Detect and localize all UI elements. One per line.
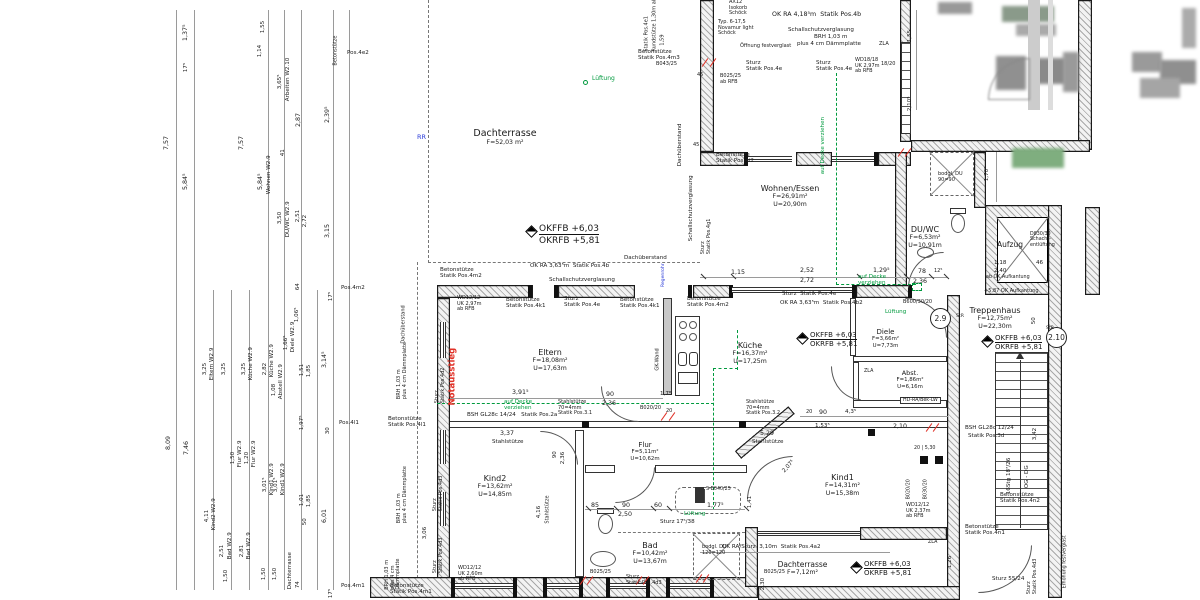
annotation-label: Pos.4m2 [341, 285, 365, 291]
annotation-label: 1,08 [271, 384, 277, 396]
annotation-label: Pos.4l1 [339, 420, 359, 426]
annotation-label: 2,82 [262, 363, 268, 375]
annotation-label: Betonstütze Statik Pos.4m2 [440, 267, 482, 280]
room-label: Kind1 F=14,31m² U=15,38m [805, 473, 880, 498]
blur-block [1132, 52, 1162, 72]
annotation-label: Sturz Statik Pos.4d2 [435, 368, 446, 404]
annotation-label: 3,01⁵ [273, 478, 279, 493]
steel-column [739, 421, 746, 428]
annotation-label: BSH GL28c 12/24 [965, 425, 1014, 431]
interior-wall [575, 430, 584, 577]
annotation-label: 1,01 [299, 494, 305, 506]
annotation-label: Betonstütze Statik Pos.4m2 [687, 296, 729, 309]
annotation-label: 1,29⁵ [873, 267, 890, 274]
wall [758, 586, 960, 600]
annotation-label: Sturz Statik Pos.4d3 [626, 575, 662, 586]
annotation-label: 41 [280, 149, 286, 156]
dimension-chain-line [213, 290, 214, 590]
level-marker: OKFFB +6,03OKRFB +5,81 [852, 560, 911, 578]
wall [860, 527, 947, 540]
annotation-label: 2,51 [219, 545, 225, 557]
annotation-label: 1,50 [223, 570, 229, 582]
level-marker-icon [981, 335, 994, 348]
annotation-label: Dachterrasse [287, 552, 293, 589]
dimension-chain-line [268, 10, 269, 590]
interior-wall [853, 356, 947, 362]
annotation-label: 17⁵ [328, 589, 334, 598]
annotation-label: 1,59 [660, 34, 666, 45]
dimension-chain-line [194, 10, 195, 590]
annotation-label: 64 [295, 283, 301, 290]
annotation-label: 1,85 [306, 365, 312, 377]
annotation-label: Sturz Statik Pos.4e [564, 296, 600, 309]
annotation-label: 2,39⁵ [324, 107, 331, 124]
blur-block [1063, 52, 1079, 92]
level-marker: OKFFB +6,03OKRFB +5,81 [527, 224, 600, 247]
annotation-label: 50 [302, 518, 308, 525]
annotation-label: 3,42 [1032, 428, 1038, 440]
annotation-label: 12⁵ [934, 269, 942, 275]
annotation-label: B600/30/20 [903, 300, 932, 306]
dimension-line [700, 552, 890, 553]
annotation-label: 1,37⁵ [182, 25, 189, 42]
room-label: Bad F=10,42m² U=13,67m [615, 541, 685, 566]
annotation-label: 2,52 [800, 267, 814, 274]
annotation-label: 3,25 [241, 363, 247, 375]
annotation-label: auf Decke verziehen [858, 274, 886, 287]
annotation-label: 46 [1036, 260, 1043, 266]
annotation-label: 2,10 [893, 423, 907, 430]
level-marker-icon [850, 561, 863, 574]
door-arc [831, 366, 861, 400]
annotation-label: 2,10⁵ [907, 97, 913, 112]
annotation-label: WD12/12 UK 2,37m ab RFB [906, 503, 931, 520]
blur-block [938, 2, 972, 14]
annotation-label: 1,77⁵ [707, 502, 724, 509]
annotation-label: 1,18 [994, 260, 1006, 266]
stair-direction-arrow [1016, 352, 1024, 359]
annotation-label: 5,84⁵ [182, 174, 189, 191]
annotation-label: Schallschutzverglasung [788, 27, 854, 33]
annotation-label: 3,25 [221, 363, 227, 375]
annotation-label: Sturz Statik Pos.4e [782, 291, 836, 297]
annotation-label: 20 [666, 409, 672, 415]
wall [745, 527, 758, 587]
annotation-label: S-B040/25 [706, 487, 731, 492]
annotation-label: Abstell W2.9 [278, 364, 284, 399]
annotation-label: 60 [654, 502, 662, 509]
room-label: Aufzug [985, 240, 1035, 249]
annotation-label: Betonstütze Statik Pos.4k1 [620, 297, 660, 310]
room-label: Dachterrasse F=52,03 m² [440, 128, 570, 147]
annotation-label: 1,70⁵ [984, 167, 990, 182]
steel-beam-line [450, 427, 947, 428]
floor-plan-canvas: Dachterrasse F=52,03 m² Wohnen/Essen F=2… [0, 0, 1200, 600]
annotation-label: WD18/18 UK 2,97m ab RFB [855, 58, 880, 75]
room-label: Eltern F=18,08m² U=17,63m [505, 348, 595, 373]
window [440, 430, 446, 464]
annotation-label: AX12 Isokorb Schöck [729, 0, 747, 17]
annotation-label: Bad W2.9 [227, 532, 233, 559]
annotation-label: Sturz Statik Pos.4d3 [1027, 559, 1038, 595]
annotation-label: 1,66⁵ [283, 336, 289, 351]
annotation-label: B025/25 [764, 570, 785, 576]
annotation-label: Schallschutzverglasung [549, 277, 615, 283]
annotation-label: 1,20 [244, 452, 250, 464]
annotation-label: 1,55 [907, 30, 913, 42]
annotation-label: Betonstütze [333, 36, 339, 66]
annotation-label: +5,87 OK Aufkantung [984, 289, 1039, 295]
annotation-label: BRH 1,03 m plus 4 cm Dämmplatte [397, 342, 408, 399]
annotation-label: Lüftung [885, 309, 906, 315]
annotation-label: Lüftung [684, 511, 705, 517]
annotation-label: 4,11 [204, 510, 210, 522]
dimension-chain-line [349, 10, 350, 590]
annotation-label: OK RA 3,63⁵m Statik Pos.4b [530, 263, 609, 269]
annotation-label: 4,16 [536, 506, 542, 518]
door-arc [988, 58, 1030, 100]
wall [1078, 0, 1092, 150]
annotation-label: ab OK Aufkantung [986, 275, 1030, 280]
annotation-label: 4,3⁵ [845, 409, 856, 415]
annotation-label: BRH 1,03 m plus 4 cm Dämmplatte [397, 466, 408, 523]
annotation-label: 1,26 [947, 556, 953, 568]
annotation-label: OG - DG [1024, 465, 1030, 488]
annotation-label: 2,40 [994, 268, 1006, 274]
annotation-label: 45 [697, 73, 703, 79]
wall [947, 295, 960, 598]
window [832, 156, 874, 162]
dimension-line [996, 152, 997, 202]
annotation-label: StR [956, 314, 964, 319]
annotation-label: 7,46 [183, 441, 190, 455]
annotation-label: 5,29 [760, 430, 774, 437]
annotation-label: Küche W2.9 [248, 347, 254, 380]
annotation-label: Wohnen W2.9 [266, 155, 272, 194]
steel-beam-line [450, 421, 947, 422]
annotation-label: Diele W2.9 [290, 322, 296, 353]
annotation-label: OK RA 3,63⁵m Statik Pos.4b2 [780, 300, 863, 306]
window [748, 156, 792, 162]
annotation-label: 30 [325, 427, 331, 434]
dimension-line [585, 509, 745, 510]
annotation-label: 3,15 [324, 224, 331, 238]
wall-cap [710, 577, 714, 598]
annotation-label: Schallschutzverglasung [688, 175, 694, 241]
annotation-label: RR [417, 134, 426, 141]
annotation-label: Stahlstütze 70=4mm Statik Pos.3.2 [746, 400, 780, 417]
annotation-label: Notausstieg [448, 348, 458, 406]
annotation-label: 2,50 [618, 511, 632, 518]
level-marker-icon [525, 225, 538, 238]
hob-ring [679, 333, 687, 341]
annotation-label: 3,65⁵ [277, 75, 283, 90]
annotation-label: 1,41 [747, 496, 753, 508]
annotation-label: 7,57 [238, 136, 245, 150]
annotation-label: 1,55 [260, 21, 266, 33]
annotation-label: ZLA [879, 42, 889, 48]
annotation-label: 3,25 [202, 363, 208, 375]
detail-badge: 2.9 [930, 308, 951, 329]
annotation-label: 5,84⁵ [257, 174, 264, 191]
annotation-label: 1,50 [261, 568, 267, 580]
annotation-label: 90 [622, 502, 630, 509]
annotation-label: 2,36 [602, 400, 616, 407]
window [670, 583, 710, 589]
annotation-label: 20 [806, 410, 812, 416]
annotation-label: B025/25 [590, 570, 611, 576]
annotation-label: Sturz Statik Pos.4d3 [433, 476, 444, 512]
annotation-label: 2,36 [560, 452, 566, 464]
vent-device [695, 487, 704, 503]
wall-cap [874, 152, 878, 166]
annotation-label: 2,87 [295, 113, 302, 127]
annotation-label: WD12/12 UK 2,97m ab RFB [457, 296, 482, 313]
annotation-label: 3,14⁵ [321, 352, 328, 369]
annotation-label: Arbeiten W2.10 [285, 58, 291, 102]
blur-block [1182, 8, 1196, 48]
annotation-label: Statik Pos.3d [968, 433, 1004, 439]
annotation-label: 90 [552, 451, 558, 458]
annotation-label: plus 4 cm Dämmplatte [797, 41, 861, 47]
outlet-box [920, 456, 928, 464]
annotation-label: 7,57 [163, 136, 170, 150]
annotation-label: Flur W2.9 [237, 440, 243, 467]
annotation-label: 2,72 [800, 277, 814, 284]
room-label: Wohnen/Essen F=26,91m² U=20,90m [740, 184, 840, 209]
door-arc [747, 456, 793, 500]
annotation-label: Dachüberstand [677, 123, 683, 166]
annotation-label: Küche W2.9 [269, 344, 275, 377]
annotation-label: Öffnung festverglast [740, 44, 791, 50]
annotation-label: Rundstütze 1,30m ab RFB [652, 0, 658, 52]
annotation-label: B025/25 ab RFB [720, 74, 741, 85]
level-marker: OKFFB +6,03OKRFB +5,81 [798, 331, 857, 349]
annotation-label: 1,14 [257, 45, 263, 57]
annotation-label: 2,51 [295, 210, 301, 222]
annotation-label: 1,75 [660, 391, 672, 397]
wall-cap [513, 577, 517, 598]
annotation-label: 45 [693, 143, 699, 149]
annotation-label: 78 [918, 268, 926, 275]
annotation-label: BRH 1,03 m plus 4 cm Dämmplatte [385, 559, 402, 590]
annotation-label: 18/20 [881, 62, 895, 68]
annotation-label: BSH GL28c 14/24 Statik Pos.2a [467, 412, 557, 418]
dimension-chain-line [317, 290, 318, 590]
annotation-label: Statik Pos.4e1 [644, 16, 650, 52]
room-label: Diele F=3,66m² U=7,73m [858, 328, 913, 350]
annotation-label: 16Stg 18⁷/26 [1006, 458, 1012, 495]
annotation-label: Sturz Statik Pos.4e [816, 60, 852, 73]
outlet-box [935, 456, 943, 464]
annotation-label: DU/WC W2.9 [285, 201, 291, 237]
annotation-label: Sturz Statik Pos.4g1 [701, 219, 712, 255]
wall [856, 285, 912, 298]
annotation-label: 6,01 [321, 509, 328, 523]
window [547, 583, 579, 589]
annotation-label: Typ. 6-17,5 Novamur light Schöck [718, 20, 754, 37]
annotation-label: Pos.4e2 [347, 50, 369, 56]
room-label: Küche F=16,37m² U=17,25m [715, 341, 785, 366]
annotation-label: 1,97⁵ [299, 416, 305, 431]
annotation-label: Kind2 W2.9 [211, 498, 217, 530]
annotation-label: HD-RA/Bek-LW [900, 397, 941, 404]
annotation-label: Betonstütze Statik Pos.4k1 [506, 297, 546, 310]
annotation-label: 1,50 [230, 452, 236, 464]
wall [796, 152, 832, 166]
annotation-label: 17⁵ [328, 292, 334, 301]
annotation-label: Betonstütze Statik Pos.4i2 [716, 152, 754, 165]
hob-ring [689, 333, 697, 341]
annotation-label: Stahlstütze 70=4mm Statik Pos.3.1 [558, 400, 592, 417]
annotation-label: 74 [295, 581, 301, 588]
annotation-label: auf Decke verziehen [504, 399, 532, 412]
annotation-label: 3,50 [277, 212, 283, 224]
annotation-label: 2,72 [302, 215, 308, 227]
annotation-label: Betonstütze Statik Pos.4l1 [388, 416, 426, 429]
dimension-chain-line [176, 10, 177, 590]
annotation-label: ZLA [928, 540, 937, 545]
roof-overhang-line [417, 262, 418, 598]
annotation-label: 1,85 [306, 495, 312, 507]
steel-column [582, 421, 589, 428]
duct-band [1048, 0, 1053, 110]
green-duct-line [713, 368, 738, 369]
roof-overhang-line [428, 0, 429, 263]
annotation-label: 1,15 [731, 269, 745, 276]
annotation-label: B020/20 [907, 479, 912, 499]
window [758, 531, 860, 536]
annotation-label: OK RA 4,18⁵m Statik Pos.4b [772, 11, 861, 18]
wall-cap [554, 285, 558, 298]
door-arc [978, 545, 1032, 593]
annotation-label: 3,37 [500, 430, 514, 437]
annotation-label: B020/20 [640, 406, 661, 412]
blur-block [1140, 78, 1180, 98]
annotation-label: BRH 1,03 m [814, 34, 847, 40]
annotation-label: 1,50 [272, 568, 278, 580]
wall-cap [852, 285, 856, 298]
kitchen-sink [689, 352, 698, 366]
annotation-label: Sturz 17⁵/38 [660, 519, 695, 525]
annotation-label: Flur W2.9 [251, 440, 257, 467]
blur-block [1012, 148, 1064, 168]
drywall-gk-wand [663, 298, 672, 395]
annotation-label: ZLA [864, 369, 873, 374]
annotation-label: Lüftung [592, 76, 615, 83]
annotation-label: Kind1 W2.9 [280, 463, 286, 495]
washbasin [590, 551, 616, 567]
annotation-label: 3,01⁵ [262, 478, 268, 493]
annotation-label: Eltern W2.9 [209, 348, 215, 381]
wall [1048, 205, 1062, 598]
annotation-label: 85 [591, 502, 599, 509]
annotation-label: Regenrohr [661, 263, 666, 287]
door-arc [615, 467, 655, 503]
hob-ring [689, 321, 697, 329]
level-marker: OKFFB +6,03OKRFB +5,81 [983, 334, 1042, 352]
annotation-label: Betonstütze Statik Pos.4n1 [965, 524, 1005, 537]
annotation-label: GK-Wand [655, 348, 661, 370]
annotation-label: Stahlstütze [492, 439, 524, 445]
annotation-label: bodgl. DU 90=90 [938, 172, 963, 183]
annotation-label: 1,51 [299, 364, 305, 376]
annotation-label: 3,91⁵ [512, 389, 529, 396]
annotation-label: auf Decke verziehen [820, 117, 826, 174]
annotation-label: 20 | 5,30 [914, 446, 935, 451]
annotation-label: Erhöhung festverglast [1063, 535, 1068, 588]
kitchen-appliance [678, 372, 698, 384]
annotation-label: 90 [819, 409, 827, 416]
annotation-label: Bad W2.9 [246, 532, 252, 559]
annotation-label: 90 [606, 391, 614, 398]
steel-column [868, 429, 875, 436]
annotation-label: WD12/12 UK 2,60m ab RFB [458, 566, 483, 583]
room-label: Abst. F=1,86m² U=6,16m [885, 369, 935, 391]
annotation-label: Dachüberstand [624, 255, 667, 261]
hob-ring [679, 321, 687, 329]
wall [1085, 207, 1100, 295]
dimension-line [700, 277, 947, 278]
annotation-label: B030/20 [924, 479, 929, 499]
annotation-label: Sturz 55/24 [992, 576, 1024, 582]
annotation-label: OK RA/Sturz 3,10m Statik Pos.4a2 [722, 544, 821, 550]
annotation-label: Pos.4m1 [341, 583, 365, 589]
kitchen-sink [678, 352, 687, 366]
annotation-label: 2,81 [239, 545, 245, 557]
annotation-label: 1,53⁵ [815, 423, 830, 429]
dimension-line [916, 10, 917, 110]
vent-point [583, 80, 588, 85]
annotation-label: StR [1046, 326, 1054, 331]
ladder-window [901, 42, 911, 134]
room-label: Kind2 F=13,62m² U=14,85m [455, 474, 535, 499]
annotation-label: 8,09 [165, 436, 172, 450]
annotation-label: D830/30 Schacht- entlüftung [1030, 232, 1055, 248]
annotation-label: 50 [1031, 317, 1037, 324]
level-marker-icon [796, 332, 809, 345]
green-duct-line [836, 73, 837, 285]
toilet-cistern [950, 208, 966, 214]
window [440, 322, 446, 358]
annotation-label: Sturz Statik Pos.4d3 [433, 538, 444, 574]
annotation-label: 2,36 [913, 278, 927, 285]
annotation-label: B043/25 [656, 62, 677, 68]
window [455, 583, 513, 589]
annotation-label: Stahlstütze [752, 439, 784, 445]
annotation-label: Sturz Statik Pos.4e [746, 60, 782, 73]
room-label: DU/WC F=6,53m² U=10,91m [890, 225, 960, 250]
interior-wall [655, 465, 747, 473]
annotation-label: 3,06 [422, 527, 428, 539]
interior-wall [585, 465, 615, 473]
room-label: Flur F=5,11m² U=10,62m [615, 441, 675, 463]
toilet [598, 514, 613, 534]
annotation-label: Stahlstütze [545, 495, 551, 523]
annotation-label: 2,30 [760, 578, 766, 590]
annotation-label: 17⁵ [183, 63, 189, 72]
annotation-label: Dachüberstand [401, 305, 407, 343]
annotation-label: 1,06⁵ [294, 308, 300, 323]
dimension-line [450, 398, 663, 399]
dimension-line [800, 416, 948, 417]
